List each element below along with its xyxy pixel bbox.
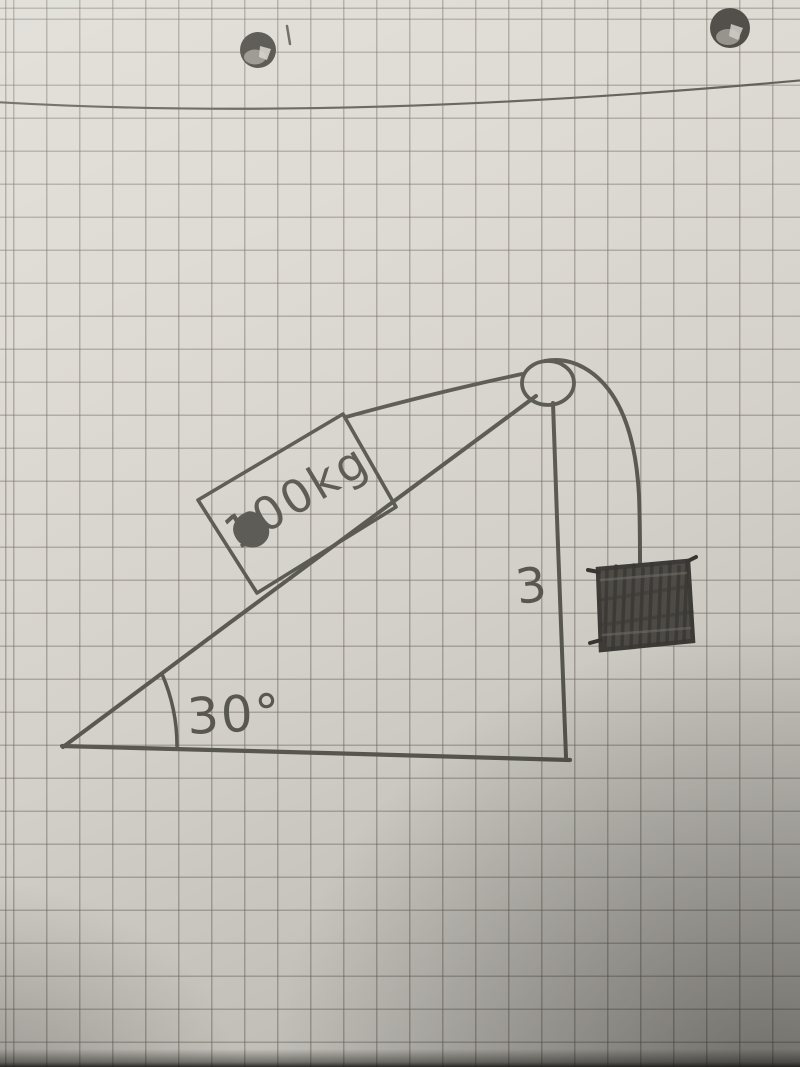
punch-hole-left [240, 32, 276, 68]
rope-block-to-pulley [346, 374, 522, 417]
page-curl-line [0, 80, 800, 109]
angle-arc [162, 674, 177, 746]
incline-surface-line [63, 396, 536, 747]
angle-value-label: 30° [186, 683, 284, 746]
pulley-wheel [522, 361, 574, 405]
physics-diagram: 30° 100kg 3 [0, 0, 800, 1067]
scribbled-out-mark [235, 513, 268, 546]
punch-hole-right [710, 8, 750, 48]
stray-pen-mark [287, 26, 290, 44]
notebook-page-photo: 30° 100kg 3 [0, 0, 800, 1067]
height-value-label: 3 [512, 556, 549, 615]
hanging-mass [588, 557, 696, 650]
vertical-side-line [553, 403, 566, 757]
ground-line [62, 746, 570, 760]
